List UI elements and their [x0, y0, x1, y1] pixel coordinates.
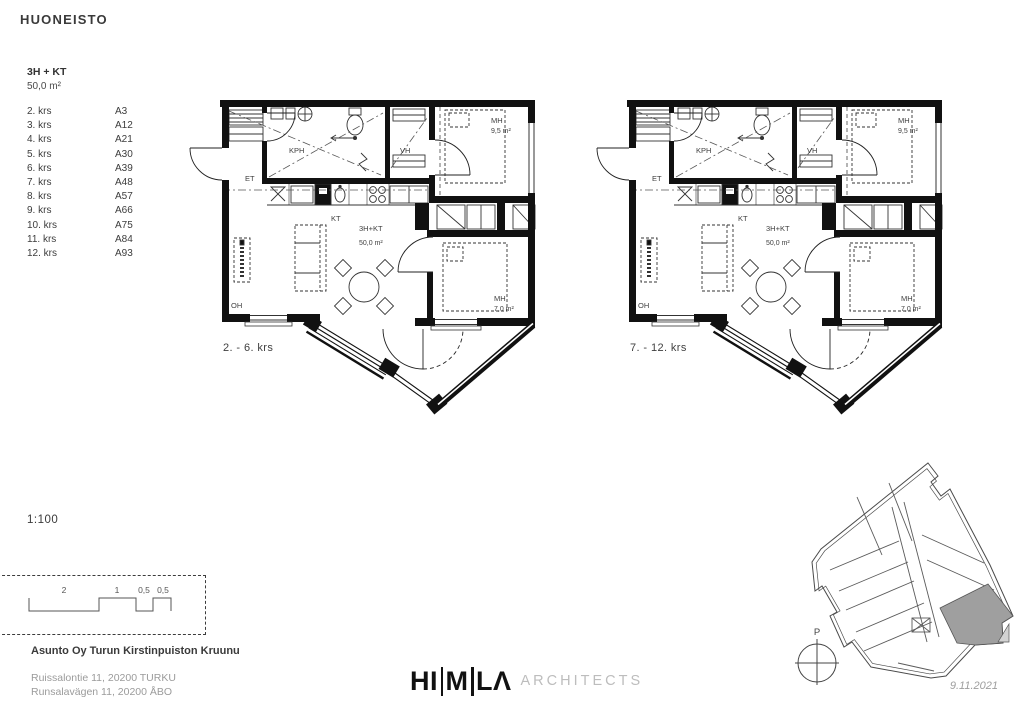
floor-label: 6. krs — [27, 162, 115, 176]
room-label-vh: VH — [400, 146, 410, 155]
room-label-et: ET — [245, 174, 255, 183]
floor-row: 11. krsA84 — [27, 233, 167, 247]
logo-part-hi: HI — [410, 666, 438, 696]
room-label-mh-top: MH — [491, 116, 503, 125]
scale-num-05a: 0,5 — [138, 585, 150, 595]
logo-architects: ARCHITECTS — [521, 673, 644, 689]
site-outline — [812, 463, 1013, 678]
logo-part-la: LΛ — [476, 666, 512, 696]
room-label-vh: VH — [807, 146, 817, 155]
apartment-number: A21 — [115, 133, 133, 147]
apartment-number: A93 — [115, 247, 133, 261]
unit-area-label: 50,0 m² — [359, 240, 383, 247]
scale-bar: 2 1 0,5 0,5 — [0, 576, 203, 631]
floor-label: 12. krs — [27, 247, 115, 261]
unit-area-label: 50,0 m² — [27, 81, 61, 92]
apartment-number: A30 — [115, 148, 133, 162]
unit-label: 3H+KT — [766, 224, 790, 233]
floor-plan-2: KPH VH ET KT 3H+KT 50,0 m² MH 9,5 m² MH … — [590, 93, 952, 438]
scale-num-1: 1 — [115, 585, 120, 595]
unit-area-label: 50,0 m² — [766, 240, 790, 247]
project-address-sv: Runsalavägen 11, 20200 ÅBO — [31, 686, 172, 698]
room-label-mh-bottom: MH — [901, 294, 913, 303]
room-area-mh-top: 9,5 m² — [898, 128, 919, 135]
floor-label: 3. krs — [27, 119, 115, 133]
floor-label: 8. krs — [27, 190, 115, 204]
floor-row: 8. krsA57 — [27, 190, 167, 204]
scale-num-2: 2 — [62, 585, 67, 595]
room-label-mh-top: MH — [898, 116, 910, 125]
floor-label: 10. krs — [27, 219, 115, 233]
apartment-number: A3 — [115, 105, 127, 119]
floor-plan-1: KPH VH ET KT 3H+KT 50,0 m² MH 9,5 m² MH … — [183, 93, 545, 438]
apartment-number: A48 — [115, 176, 133, 190]
plan-1-caption: 2. - 6. krs — [223, 342, 273, 354]
floor-row: 6. krsA39 — [27, 162, 167, 176]
scale-num-05b: 0,5 — [157, 585, 169, 595]
floor-list: 2. krsA33. krsA124. krsA215. krsA306. kr… — [27, 105, 167, 261]
project-name: Asunto Oy Turun Kirstinpuiston Kruunu — [31, 645, 240, 657]
logo-bar-icon — [471, 667, 474, 696]
scale-bar-box: 2 1 0,5 0,5 — [0, 575, 206, 635]
plan-2-caption: 7. - 12. krs — [630, 342, 687, 354]
apartment-number: A57 — [115, 190, 133, 204]
room-label-kph: KPH — [696, 146, 711, 155]
north-arrow-icon — [795, 639, 839, 685]
floor-row: 5. krsA30 — [27, 148, 167, 162]
unit-type-label: 3H + KT — [27, 66, 66, 78]
floor-plan-2-labels: KPH VH ET KT 3H+KT 50,0 m² MH 9,5 m² MH … — [638, 116, 922, 313]
floor-label: 11. krs — [27, 233, 115, 247]
apartment-number: A39 — [115, 162, 133, 176]
logo-part-m: M — [446, 666, 469, 696]
drawing-date: 9.11.2021 — [898, 680, 998, 692]
room-label-et: ET — [652, 174, 662, 183]
floor-plan-1-labels: KPH VH ET KT 3H+KT 50,0 m² MH 9,5 m² MH … — [231, 116, 515, 313]
floor-label: 5. krs — [27, 148, 115, 162]
room-label-kt: KT — [738, 214, 748, 223]
apartment-number: A84 — [115, 233, 133, 247]
floor-label: 2. krs — [27, 105, 115, 119]
room-label-oh: OH — [638, 301, 649, 310]
room-label-kt: KT — [331, 214, 341, 223]
project-address-fi: Ruissalontie 11, 20200 TURKU — [31, 672, 176, 684]
room-label-kph: KPH — [289, 146, 304, 155]
room-area-mh-bottom: 7,0 m² — [494, 306, 515, 313]
floor-label: 4. krs — [27, 133, 115, 147]
logo-bar-icon — [441, 667, 444, 696]
floor-label: 7. krs — [27, 176, 115, 190]
north-label: P — [814, 627, 820, 638]
floor-row: 12. krsA93 — [27, 247, 167, 261]
himla-logo: HI M LΛ ARCHITECTS — [410, 666, 643, 696]
room-area-mh-bottom: 7,0 m² — [901, 306, 922, 313]
room-label-mh-bottom: MH — [494, 294, 506, 303]
floor-row: 10. krsA75 — [27, 219, 167, 233]
room-label-oh: OH — [231, 301, 242, 310]
site-key-plan: P — [794, 455, 1024, 715]
unit-label: 3H+KT — [359, 224, 383, 233]
page-title: HUONEISTO — [20, 12, 108, 27]
floor-row: 2. krsA3 — [27, 105, 167, 119]
floor-row: 7. krsA48 — [27, 176, 167, 190]
floor-row: 9. krsA66 — [27, 204, 167, 218]
room-area-mh-top: 9,5 m² — [491, 128, 512, 135]
drawing-sheet: HUONEISTO 3H + KT 50,0 m² 2. krsA33. krs… — [0, 0, 1024, 718]
floor-row: 4. krsA21 — [27, 133, 167, 147]
floor-label: 9. krs — [27, 204, 115, 218]
apartment-number: A75 — [115, 219, 133, 233]
apartment-number: A12 — [115, 119, 133, 133]
floor-row: 3. krsA12 — [27, 119, 167, 133]
drawing-scale: 1:100 — [27, 514, 58, 526]
apartment-number: A66 — [115, 204, 133, 218]
